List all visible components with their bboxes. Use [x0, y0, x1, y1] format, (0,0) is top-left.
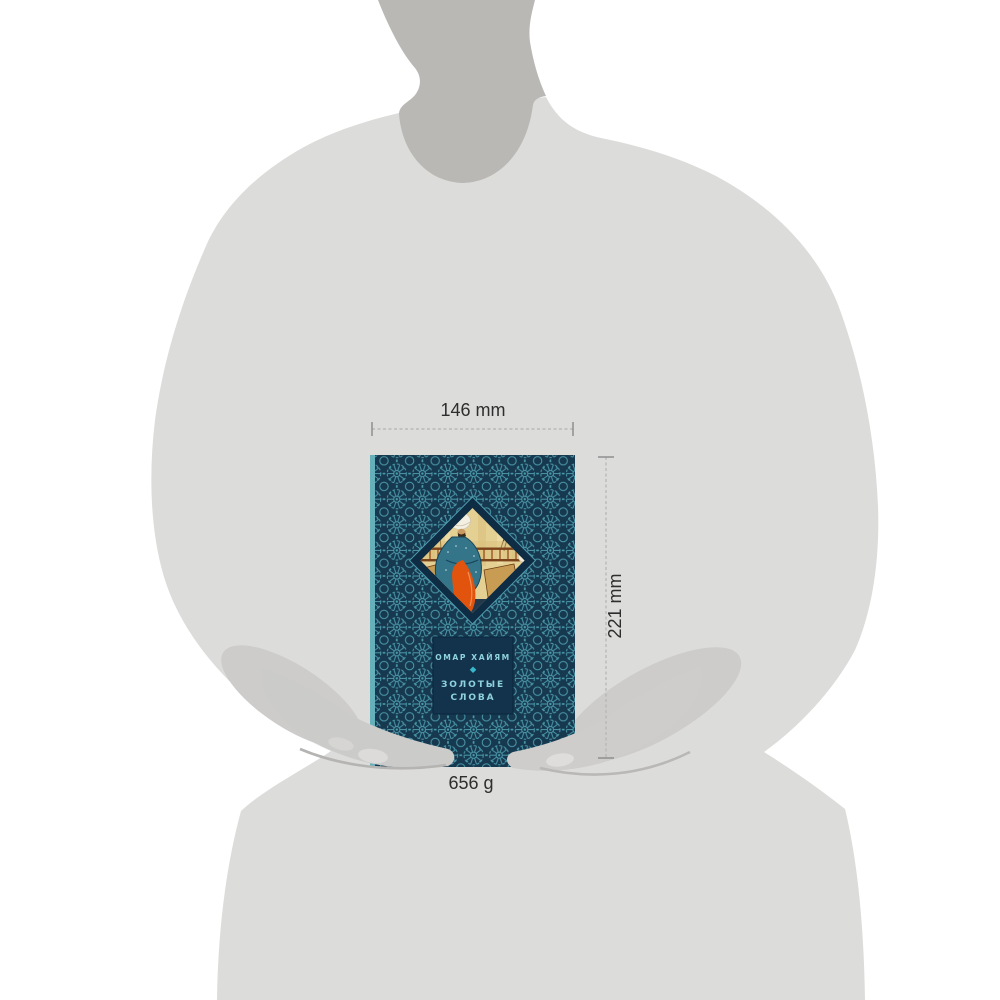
book-title-box: ОМАР ХАЙЯМ ◆ ЗОЛОТЫЕ СЛОВА	[433, 637, 513, 714]
width-dimension-label: 146 mm	[440, 400, 505, 420]
scene-canvas: ОМАР ХАЙЯМ ◆ ЗОЛОТЫЕ СЛОВА 146 mm 221 mm…	[0, 0, 1000, 1000]
book-title-line2: СЛОВА	[450, 693, 495, 703]
book-title-line1: ЗОЛОТЫЕ	[441, 680, 505, 690]
weight-label: 656 g	[448, 773, 493, 793]
product-dimension-figure: ОМАР ХАЙЯМ ◆ ЗОЛОТЫЕ СЛОВА 146 mm 221 mm…	[0, 0, 1000, 1000]
diamond-divider-icon: ◆	[470, 665, 477, 675]
book-author-label: ОМАР ХАЙЯМ	[435, 653, 511, 662]
book-cover: ОМАР ХАЙЯМ ◆ ЗОЛОТЫЕ СЛОВА	[370, 455, 575, 767]
height-dimension-label: 221 mm	[605, 573, 625, 638]
book-spine-edge	[370, 455, 375, 767]
